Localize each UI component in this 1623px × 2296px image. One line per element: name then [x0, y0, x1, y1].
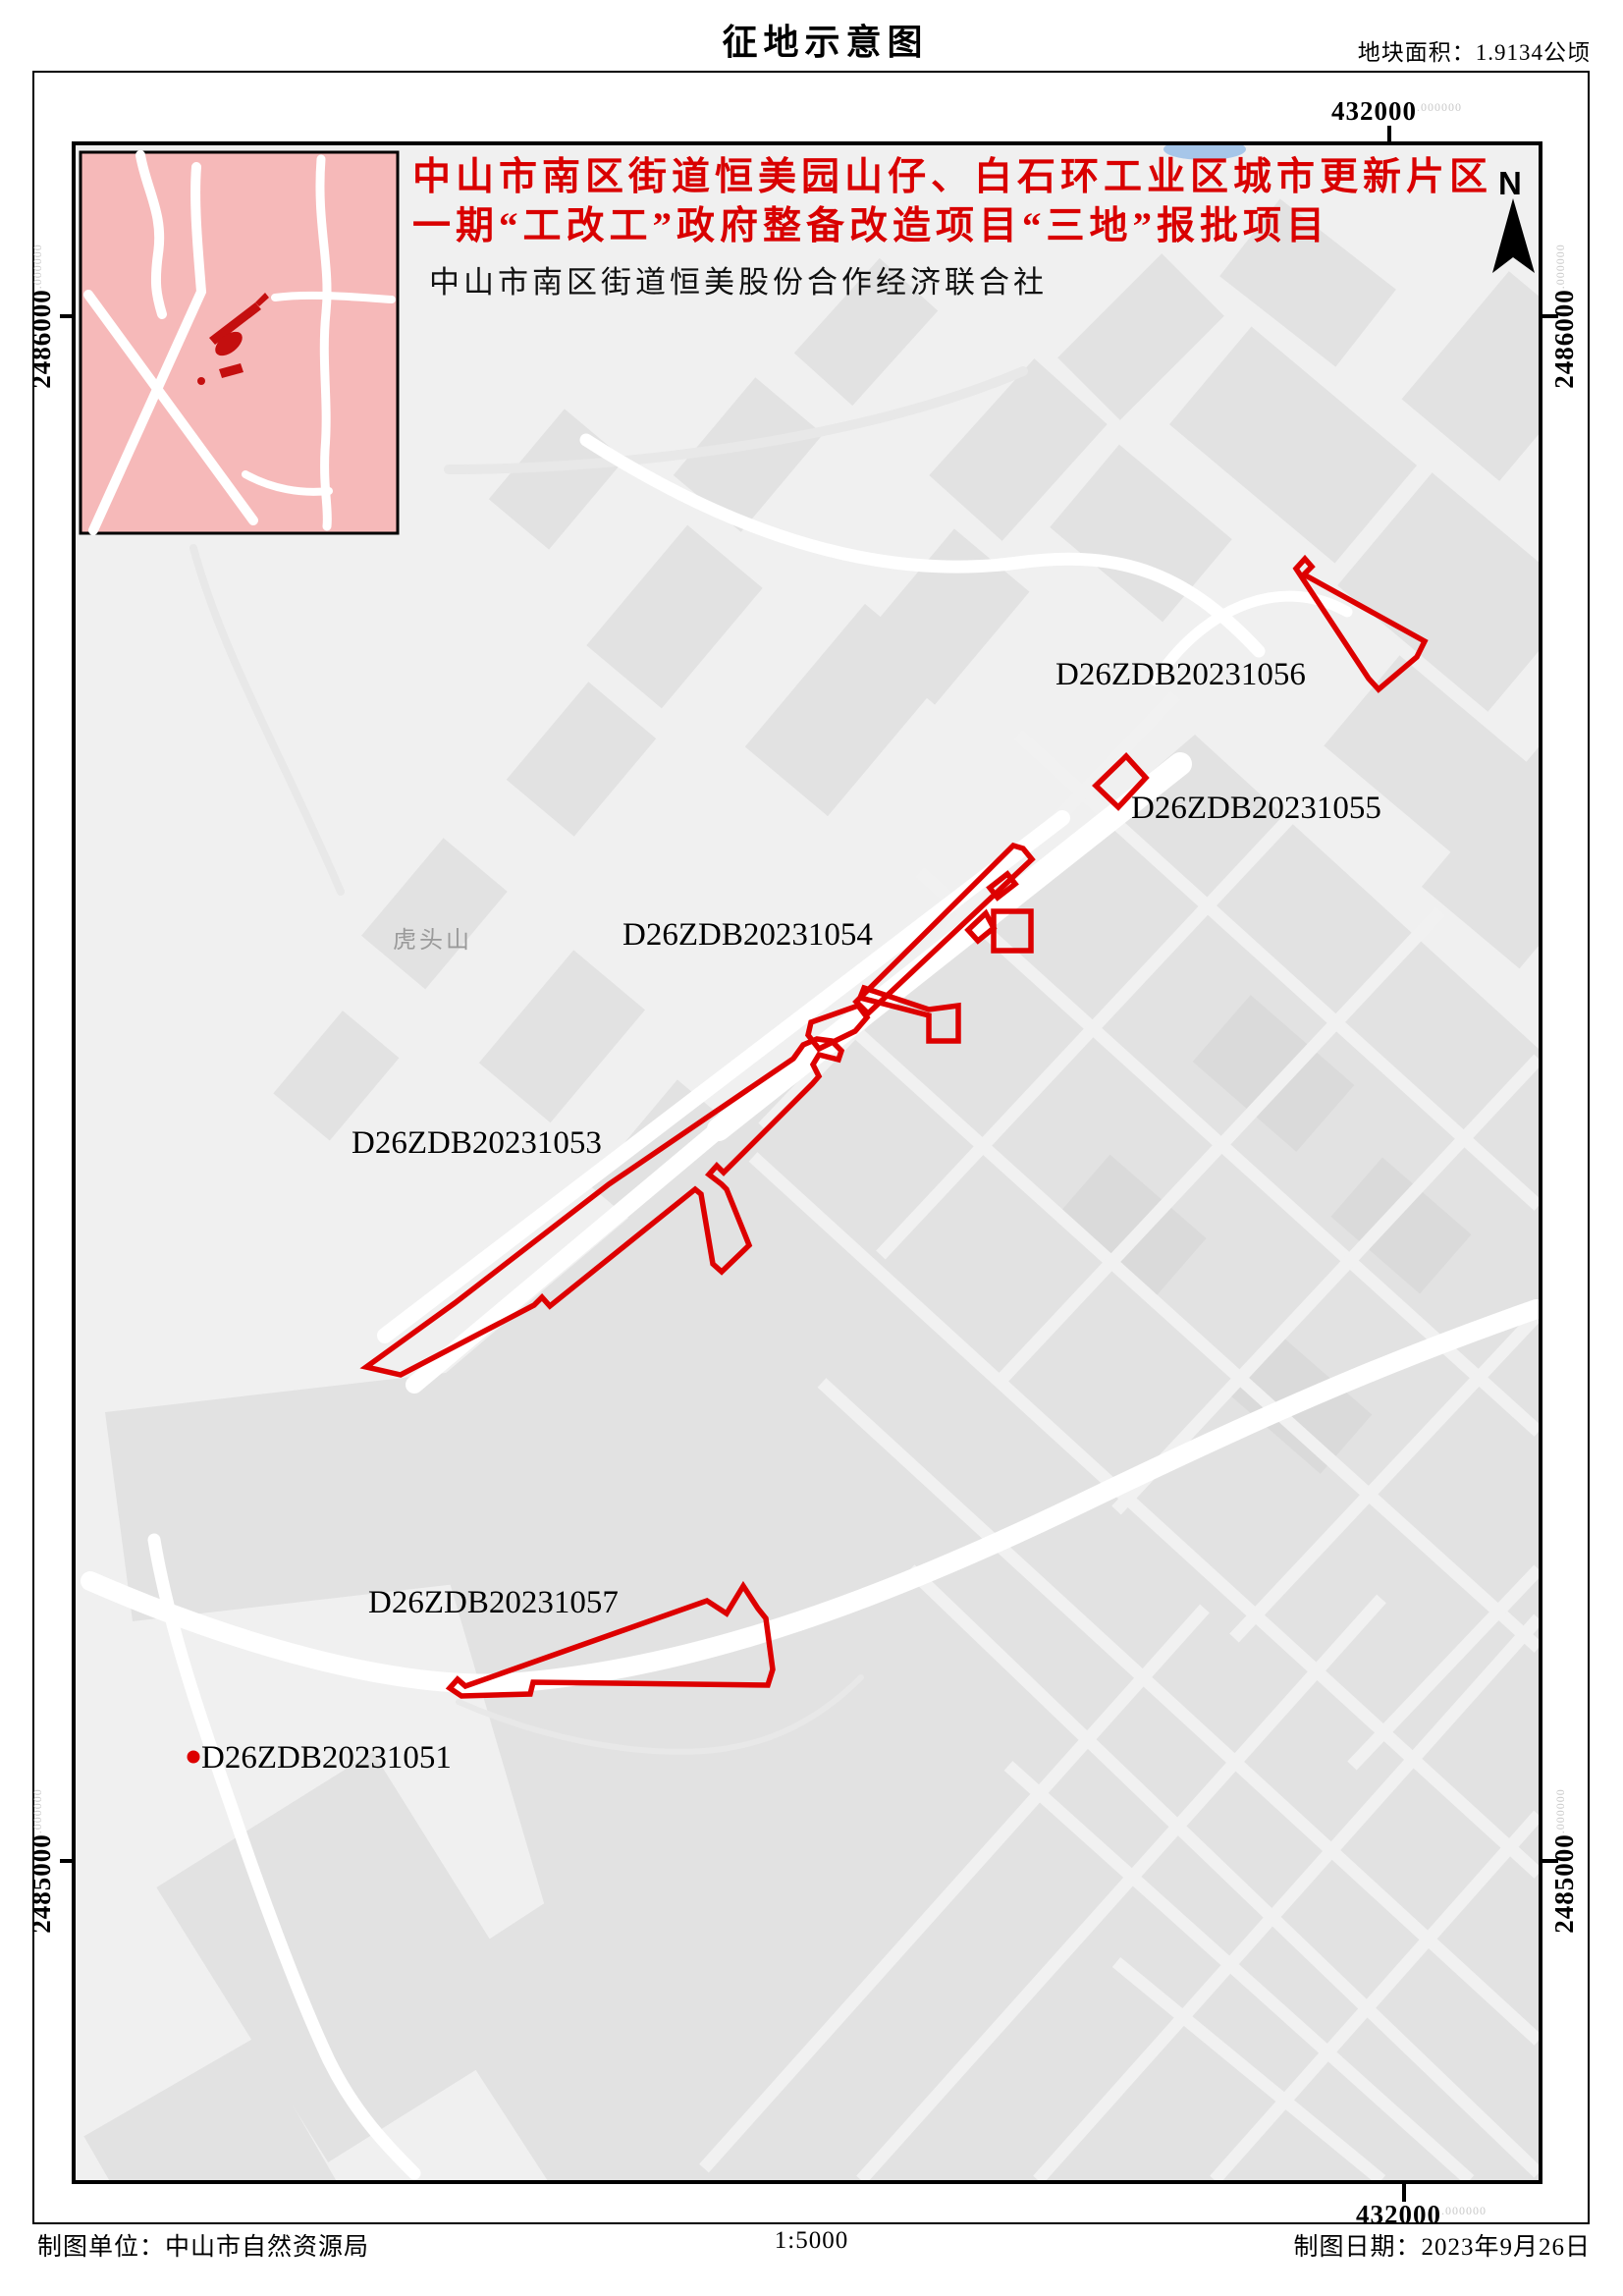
coord-value: 2485000 — [27, 1833, 56, 1934]
map-canvas: D26ZDB20231056 D26ZDB20231055 D26ZDB2023… — [72, 141, 1542, 2184]
parcel-label-1057: D26ZDB20231057 — [368, 1585, 619, 1620]
project-title-line1: 中山市南区街道恒美园山仔、白石环工业区城市更新片区 — [412, 153, 1502, 202]
coord-label-right-lower: 2485000.000000 — [1549, 1777, 1589, 1944]
place-label-hutoushan: 虎头山 — [393, 927, 472, 954]
coord-suffix: .000000 — [30, 244, 44, 289]
parcel-label-1054: D26ZDB20231054 — [622, 917, 873, 953]
coord-label-right-upper: 2486000.000000 — [1549, 233, 1589, 400]
coord-value: 2486000 — [1549, 289, 1579, 389]
basemap: D26ZDB20231056 D26ZDB20231055 D26ZDB2023… — [76, 145, 1539, 2180]
coord-value: 432000 — [1356, 2200, 1441, 2229]
coord-label-left-lower: 2485000.000000 — [27, 1777, 66, 1944]
tick-bottom — [1402, 2182, 1406, 2202]
coord-value: 432000 — [1331, 96, 1417, 126]
parcel-label-1053: D26ZDB20231053 — [352, 1125, 602, 1161]
coord-value: 2485000 — [1549, 1833, 1579, 1934]
inset-locator-map — [81, 152, 398, 533]
parcel-label-1055: D26ZDB20231055 — [1131, 791, 1381, 826]
plot-area-label: 地块面积：1.9134公顷 — [1358, 33, 1591, 67]
parcel-label-1056: D26ZDB20231056 — [1055, 657, 1306, 692]
parcel-dot-1051 — [188, 1751, 200, 1764]
coord-label-bottom: 432000.000000 — [1356, 2200, 1487, 2230]
coord-suffix: .000000 — [1417, 100, 1462, 114]
coord-suffix: .000000 — [1553, 1788, 1567, 1833]
project-title-line2: 一期“工改工”政府整备改造项目“三地”报批项目 — [412, 202, 1502, 251]
applicant-name: 中山市南区街道恒美股份合作经济联合社 — [429, 257, 1048, 301]
coord-label-left-upper: 2486000.000000 — [27, 233, 66, 400]
coord-suffix: .000000 — [1553, 244, 1567, 289]
coord-label-top: 432000.000000 — [1331, 96, 1462, 127]
parcel-label-1051: D26ZDB20231051 — [201, 1740, 452, 1776]
coord-value: 2486000 — [27, 289, 56, 389]
coord-suffix: .000000 — [30, 1788, 44, 1833]
project-title: 中山市南区街道恒美园山仔、白石环工业区城市更新片区 一期“工改工”政府整备改造项… — [412, 153, 1502, 251]
footer-date: 制图日期：2023年9月26日 — [1293, 2227, 1591, 2263]
land-acquisition-map-sheet: { "page": { "title": "征地示意图", "area_labe… — [0, 0, 1623, 2296]
coord-suffix: .000000 — [1441, 2204, 1487, 2217]
